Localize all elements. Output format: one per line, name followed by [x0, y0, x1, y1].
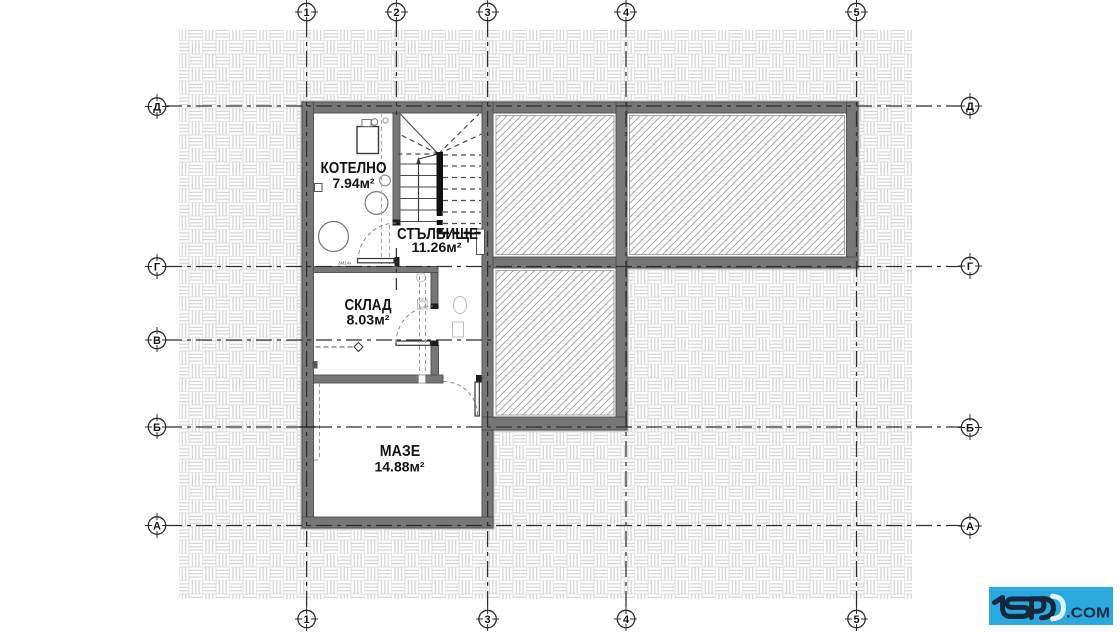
svg-text:5: 5: [853, 614, 859, 626]
svg-text:Д: Д: [966, 101, 974, 113]
svg-text:5: 5: [853, 7, 859, 19]
svg-text:МАЗЕ: МАЗЕ: [380, 443, 421, 460]
svg-text:Д: Д: [153, 102, 161, 114]
svg-text:1: 1: [304, 7, 310, 19]
svg-text:Б: Б: [966, 423, 974, 435]
svg-text:Б: Б: [153, 422, 161, 434]
svg-text:2: 2: [393, 7, 399, 19]
svg-text:1: 1: [304, 614, 310, 626]
svg-text:Г: Г: [154, 262, 161, 274]
svg-text:А: А: [966, 521, 974, 533]
svg-text:11.26м²: 11.26м²: [412, 239, 462, 255]
svg-text:3M14x: 3M14x: [338, 261, 352, 266]
svg-text:3: 3: [485, 7, 491, 19]
svg-text:14.88м²: 14.88м²: [375, 459, 425, 475]
svg-text:А: А: [153, 521, 161, 533]
svg-text:4: 4: [623, 7, 630, 19]
svg-text:Г: Г: [967, 261, 974, 273]
svg-text:.COM: .COM: [1066, 605, 1110, 622]
svg-text:В: В: [153, 335, 161, 347]
svg-text:7.94м²: 7.94м²: [333, 175, 375, 191]
svg-text:3: 3: [485, 614, 491, 626]
svg-text:4: 4: [623, 614, 630, 626]
svg-text:8.03м²: 8.03м²: [347, 312, 390, 328]
